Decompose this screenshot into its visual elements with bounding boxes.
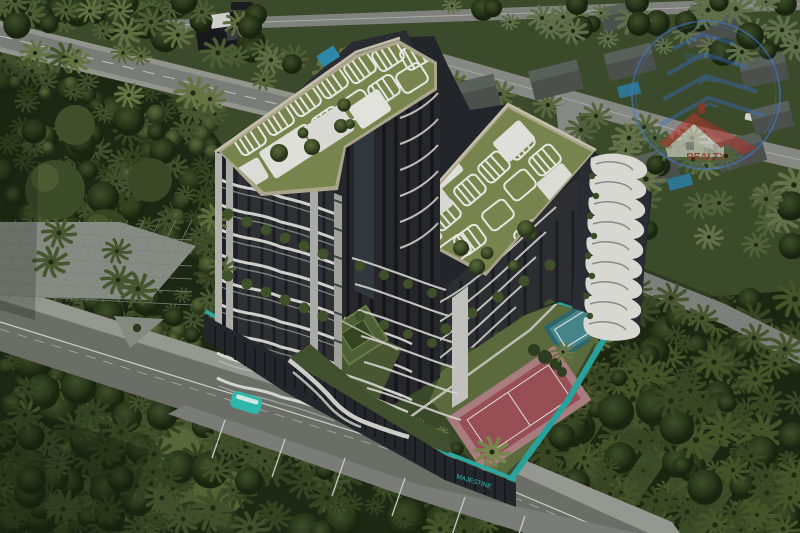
svg-text:REALTY: REALTY bbox=[686, 152, 726, 163]
svg-text:DENVER: DENVER bbox=[685, 52, 723, 62]
